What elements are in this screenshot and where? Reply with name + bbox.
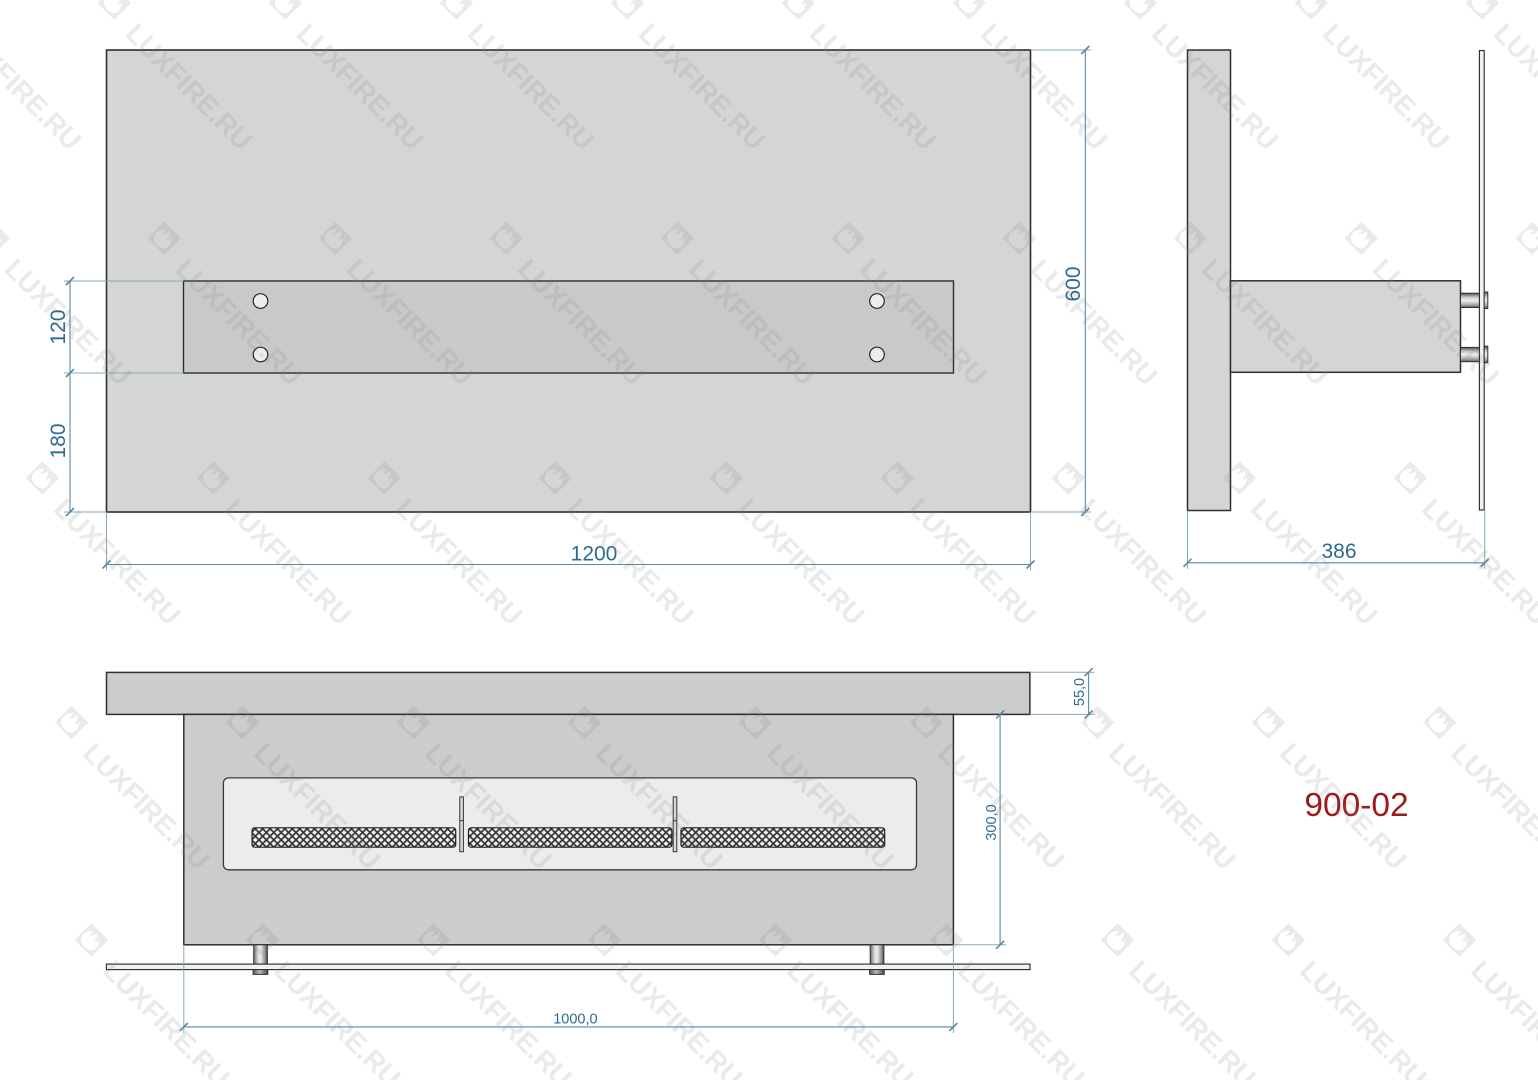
svg-text:180: 180 xyxy=(47,423,70,458)
svg-text:1000,0: 1000,0 xyxy=(553,1012,597,1028)
svg-text:55,0: 55,0 xyxy=(1072,678,1088,706)
